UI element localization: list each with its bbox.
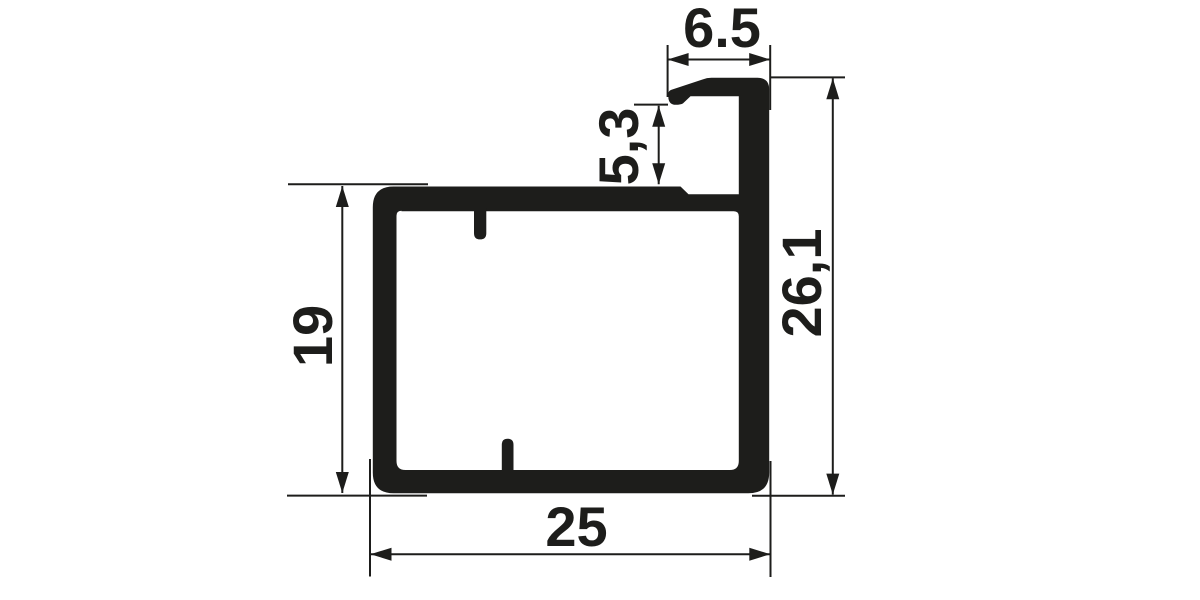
svg-text:25: 25 <box>545 495 607 558</box>
svg-text:26,1: 26,1 <box>770 229 833 338</box>
svg-text:19: 19 <box>281 305 344 367</box>
svg-text:5,3: 5,3 <box>587 108 650 186</box>
svg-text:6.5: 6.5 <box>683 0 761 59</box>
